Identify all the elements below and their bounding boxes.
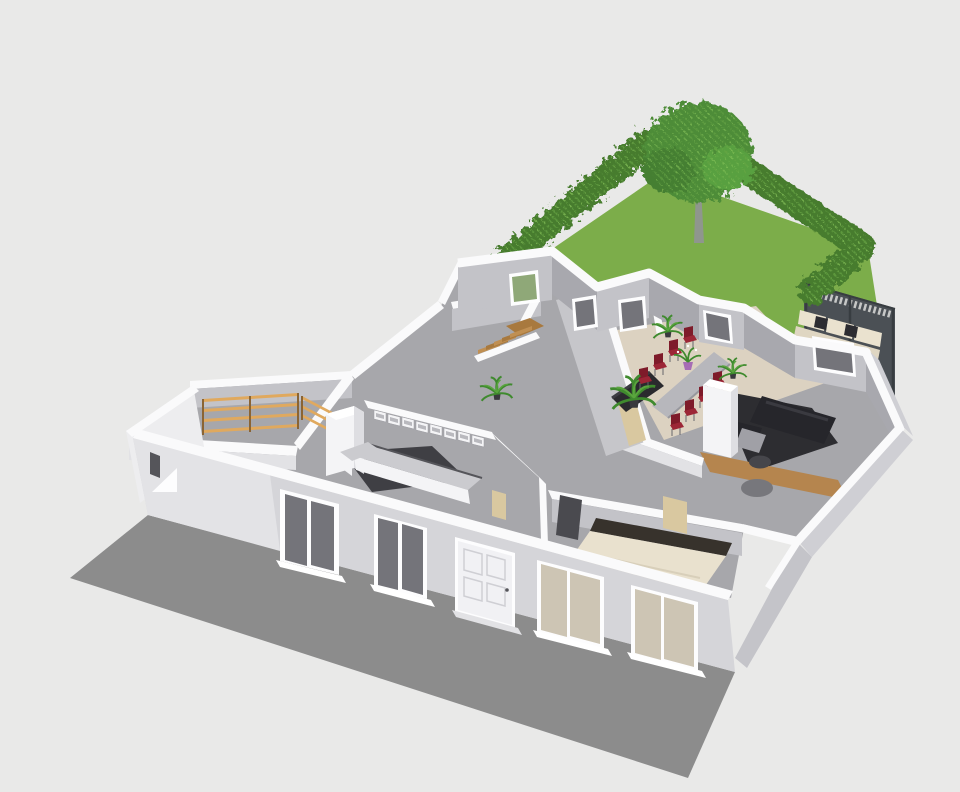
window-glass	[541, 564, 567, 637]
rear-window	[618, 296, 647, 332]
interior-door	[663, 496, 687, 534]
window-glass	[402, 524, 423, 595]
rear-window	[572, 295, 598, 331]
window-glass	[575, 299, 595, 327]
window-glass	[664, 597, 694, 667]
window-glass	[512, 274, 537, 302]
vent-slot	[150, 452, 160, 478]
window-glass	[635, 589, 661, 660]
window-glass	[285, 494, 307, 566]
window-glass	[621, 300, 644, 329]
chimney-column	[703, 379, 738, 458]
window-glass	[311, 501, 334, 571]
rear-window	[509, 270, 540, 306]
window-glass	[570, 572, 600, 644]
door-handle	[505, 588, 509, 592]
interior-door	[492, 490, 506, 520]
round-side-table	[749, 456, 771, 469]
window-glass	[378, 518, 398, 590]
floor-plan-3d-viewport[interactable]	[0, 0, 960, 792]
round-floor-rug	[741, 479, 773, 497]
rear-window	[703, 310, 733, 344]
bedroom-doorway-shadow	[556, 495, 582, 540]
